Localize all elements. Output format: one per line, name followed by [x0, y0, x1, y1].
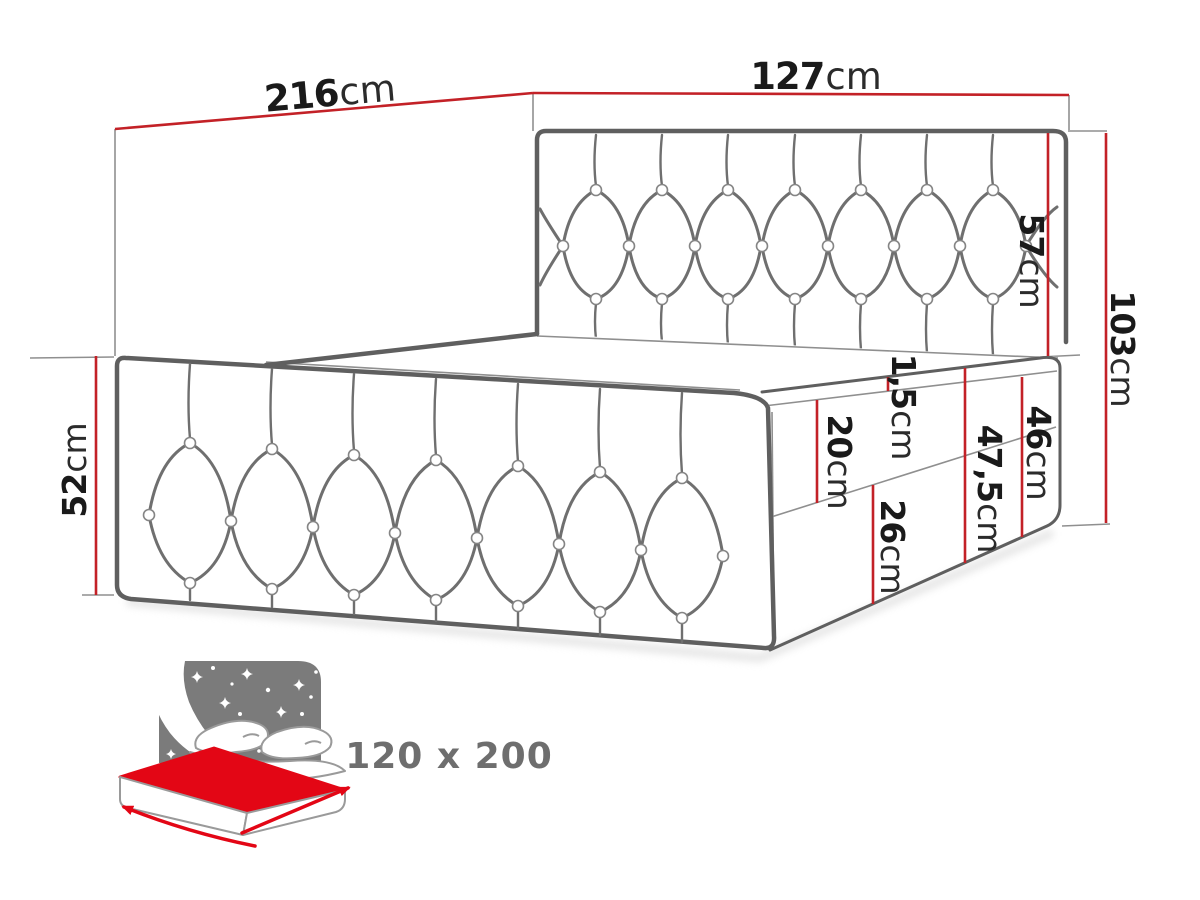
dim-value-length: 216 [263, 71, 341, 120]
dim-value-headboard: 57 [1012, 213, 1051, 257]
dim-label-base-and-mattress: 47,5cm [967, 409, 1011, 569]
bed-dimension-diagram: 216cm 127cm 52cm 57cm 103cm 1,5cm 20cm 4… [0, 0, 1200, 900]
dim-label-width: 127cm [726, 55, 906, 99]
dim-unit-width: cm [825, 55, 881, 98]
dim-unit-base: cm [873, 544, 912, 594]
headboard [537, 131, 1066, 355]
dim-unit-base-and-mattress: cm [970, 503, 1009, 553]
dim-value-width: 127 [750, 55, 824, 98]
dim-label-base: 26cm [870, 467, 914, 627]
dim-unit-total-height: cm [1103, 357, 1142, 407]
dim-unit-side-height: cm [55, 422, 94, 472]
dim-label-side-height: 52cm [53, 390, 97, 550]
dim-label-total-height: 103cm [1100, 269, 1144, 429]
dim-unit-headboard: cm [1012, 258, 1051, 308]
dim-unit-base-no-topper: cm [1019, 450, 1058, 500]
dim-value-mattress: 20 [820, 414, 859, 458]
dim-label-topper: 1,5cm [881, 327, 925, 487]
dim-value-base-no-topper: 46 [1019, 405, 1058, 449]
dim-value-base-and-mattress: 47,5 [970, 425, 1009, 502]
side-panel-outline [117, 358, 774, 648]
mattress-size-label: 120 x 200 [339, 733, 559, 781]
dim-value-total-height: 103 [1103, 290, 1142, 356]
dim-unit-length: cm [337, 66, 397, 114]
size-icon [120, 661, 348, 846]
dim-value-base: 26 [873, 499, 912, 543]
dim-value-side-height: 52 [55, 474, 94, 518]
dim-label-mattress: 20cm [817, 382, 861, 542]
dim-label-headboard-above-mattress: 57cm [1009, 181, 1053, 341]
dim-value-topper: 1,5 [884, 354, 923, 409]
dim-unit-mattress: cm [820, 459, 859, 509]
side-panel [117, 358, 774, 648]
headboard-outline [537, 131, 1066, 342]
dim-unit-topper: cm [884, 410, 923, 460]
dim-label-base-no-topper: 46cm [1016, 373, 1060, 533]
